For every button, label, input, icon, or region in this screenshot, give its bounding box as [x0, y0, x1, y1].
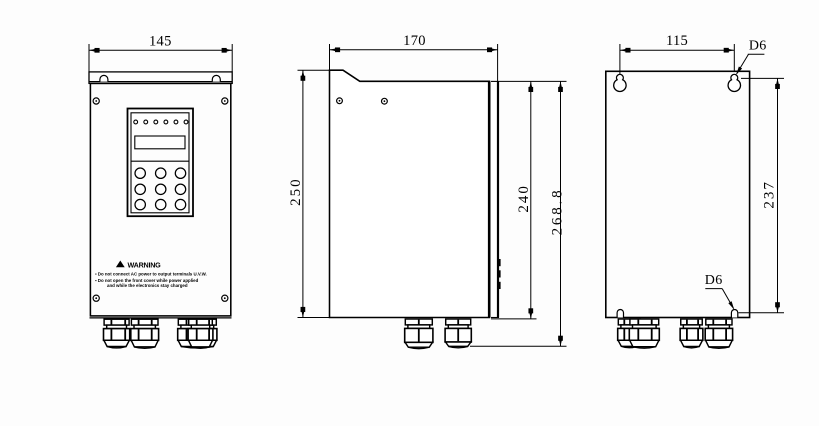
svg-text:and while the electronics stay: and while the electronics stay charged	[107, 283, 188, 288]
svg-text:237: 237	[761, 180, 777, 209]
svg-text:WARNING: WARNING	[128, 260, 162, 269]
svg-text:268.8: 268.8	[549, 188, 565, 236]
svg-text:D6: D6	[749, 39, 767, 54]
svg-text:▪ Do not connect AC power to o: ▪ Do not connect AC power to output term…	[95, 271, 207, 276]
svg-text:240: 240	[516, 184, 532, 213]
svg-text:115: 115	[666, 33, 688, 49]
svg-text:145: 145	[149, 34, 172, 50]
svg-text:D6: D6	[705, 273, 723, 288]
svg-text:170: 170	[403, 33, 426, 49]
svg-text:250: 250	[288, 177, 304, 206]
